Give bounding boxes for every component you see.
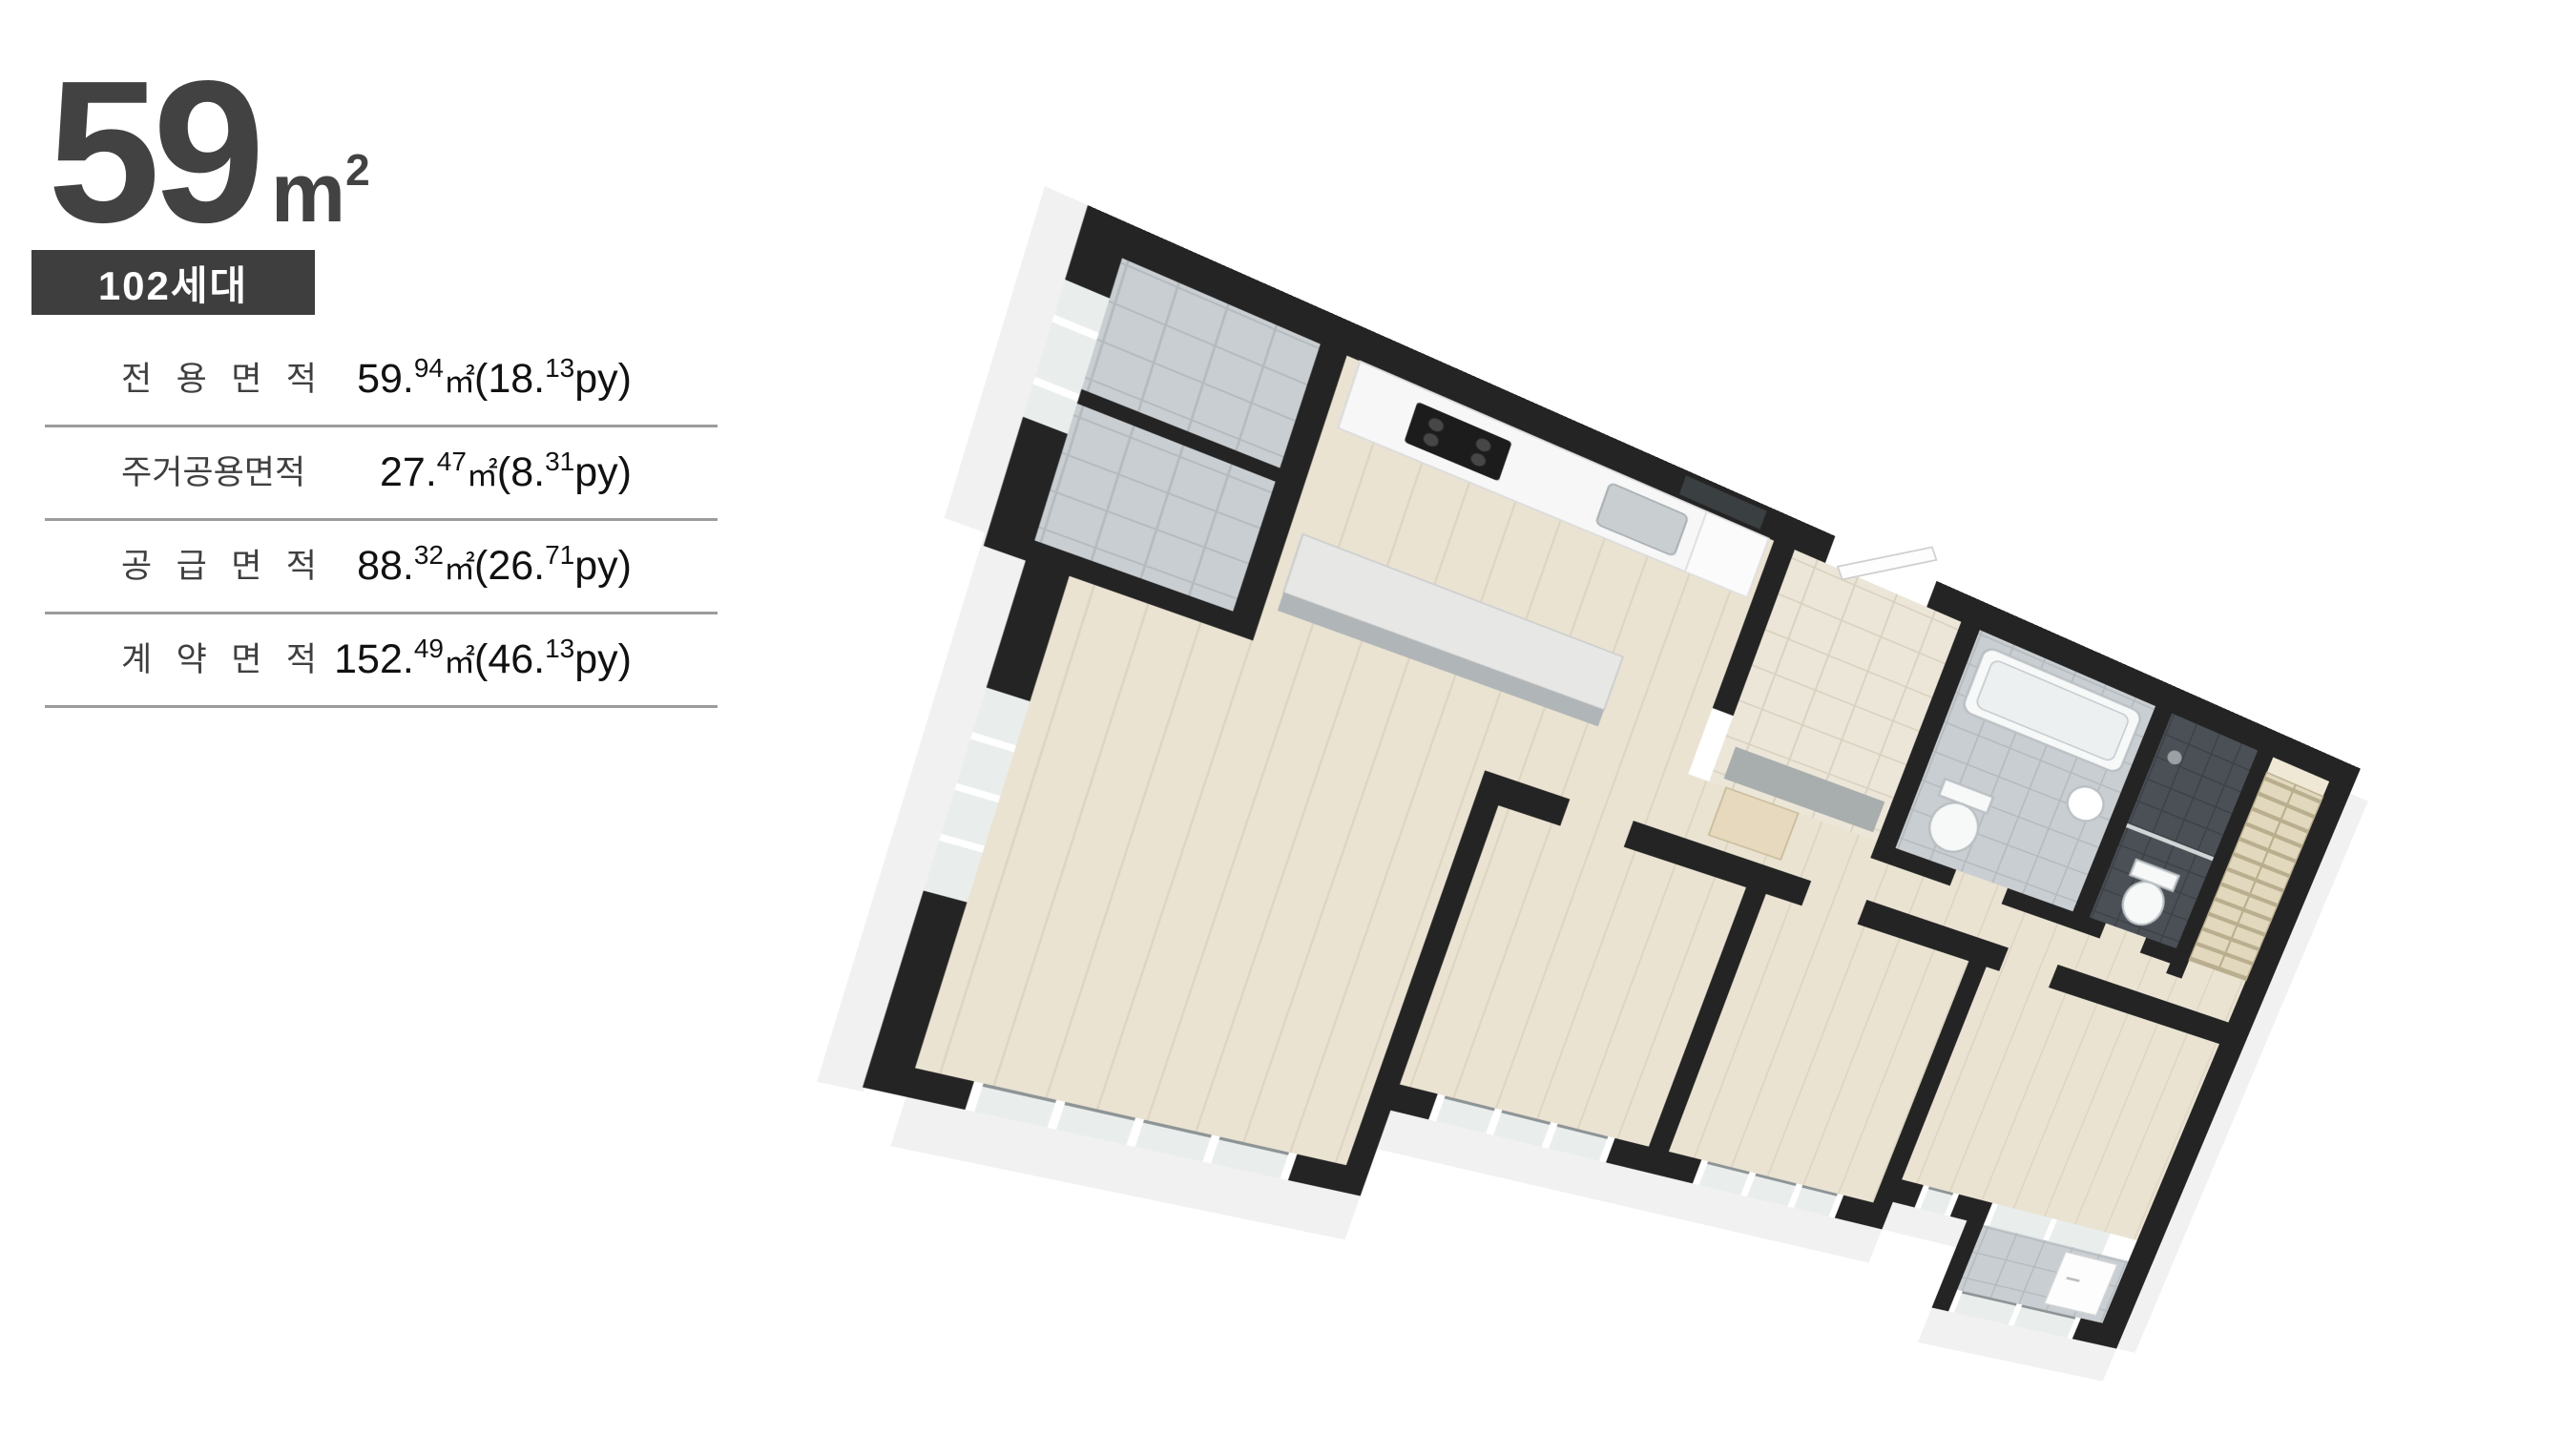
unit-size-number: 59 bbox=[48, 61, 258, 242]
entry-door bbox=[1838, 547, 1937, 579]
table-row-common-area: 주거공용면적 27.47㎡(8.31py) bbox=[45, 427, 718, 521]
floor-plan-svg bbox=[821, 205, 2381, 1364]
area-table: 전 용 면 적 59.94㎡(18.13py) 주거공용면적 27.47㎡(8.… bbox=[45, 334, 718, 708]
table-row-contract-area: 계 약 면 적 152.49㎡(46.13py) bbox=[45, 614, 718, 708]
area-value: 59.94㎡(18.13py) bbox=[357, 334, 632, 425]
area-label: 계 약 면 적 bbox=[121, 614, 317, 705]
page-title: 59 m2 bbox=[48, 61, 368, 242]
unit-size-exponent: 2 bbox=[345, 145, 368, 195]
table-row-exclusive-area: 전 용 면 적 59.94㎡(18.13py) bbox=[45, 334, 718, 427]
floor-plan-3d-render bbox=[821, 205, 2381, 1364]
area-label: 공 급 면 적 bbox=[121, 521, 317, 612]
table-row-supply-area: 공 급 면 적 88.32㎡(26.71py) bbox=[45, 521, 718, 614]
unit-size-unit: m2 bbox=[271, 144, 368, 241]
area-value: 88.32㎡(26.71py) bbox=[357, 521, 632, 612]
household-count-badge: 102세대 bbox=[31, 250, 315, 315]
area-label: 주거공용면적 bbox=[121, 427, 317, 518]
area-label: 전 용 면 적 bbox=[121, 334, 317, 425]
area-value: 152.49㎡(46.13py) bbox=[334, 614, 632, 705]
brochure-page: 59 m2 102세대 전 용 면 적 59.94㎡(18.13py) 주거공용… bbox=[0, 0, 2561, 1456]
area-value: 27.47㎡(8.31py) bbox=[380, 427, 632, 518]
